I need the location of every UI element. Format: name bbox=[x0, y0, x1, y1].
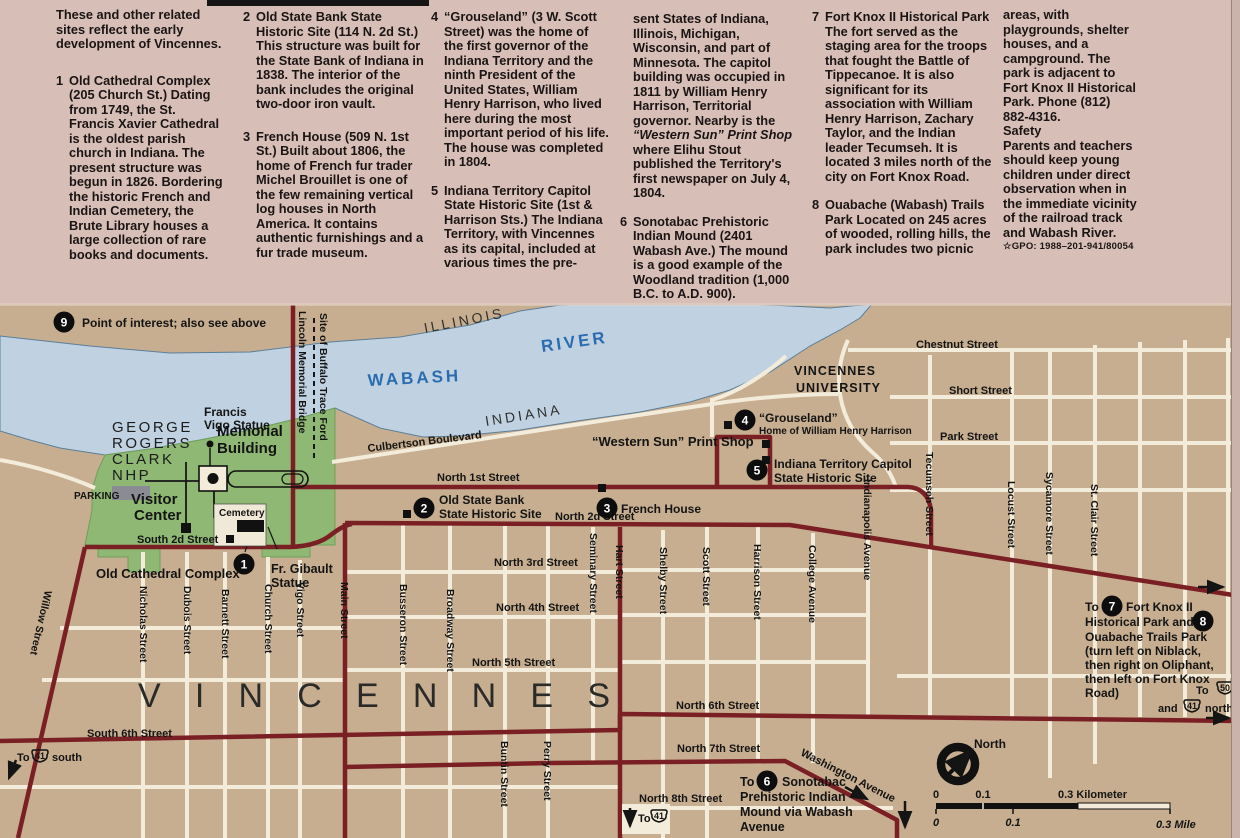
gpo-imprint: ☆GPO: 1988–201-941/80054 bbox=[1003, 240, 1137, 255]
street-label-st-clair: St. Clair Street bbox=[1088, 484, 1100, 557]
svg-text:3: 3 bbox=[604, 502, 611, 516]
park-name-line4: NHP bbox=[112, 467, 151, 484]
entry-number: 4 bbox=[431, 10, 444, 170]
street-label-north-7th: North 7th Street bbox=[677, 743, 760, 755]
street-label-lincoln-bridge: Lincoln Memorial Bridge bbox=[296, 311, 308, 434]
street-label-church: Church Street bbox=[262, 584, 274, 654]
text-column-1: These and other related sites reflect th… bbox=[56, 8, 224, 313]
entry-body: “Grouseland” (3 W. Scott Street) was the… bbox=[444, 10, 611, 170]
street-label-college: College Avenue bbox=[806, 545, 818, 623]
svg-text:Avenue: Avenue bbox=[740, 820, 785, 834]
svg-text:41: 41 bbox=[1187, 701, 1197, 711]
street-label-vigo: Vigo Street bbox=[294, 582, 306, 638]
entry-body: Sonotabac Prehistoric Indian Mound (2401… bbox=[633, 215, 802, 302]
entry-number: 2 bbox=[243, 10, 256, 112]
park-name-line3: CLARK bbox=[112, 451, 175, 468]
street-label-locust: Locust Street bbox=[1005, 481, 1017, 549]
svg-text:To: To bbox=[1085, 600, 1099, 614]
street-label-main: Main Street bbox=[338, 582, 350, 639]
street-label-north-3rd: North 3rd Street bbox=[494, 557, 578, 569]
svg-text:7: 7 bbox=[1109, 600, 1116, 614]
safety-paragraph: Parents and teachers should keep young c… bbox=[1003, 139, 1137, 241]
street-label-harrison: Harrison Street bbox=[751, 544, 763, 620]
svg-text:0.3 Mile: 0.3 Mile bbox=[1156, 819, 1196, 831]
western-sun-label: “Western Sun” Print Shop bbox=[592, 434, 754, 449]
street-label-tecumseh: Tecumseh Street bbox=[923, 452, 935, 536]
street-label-north-5th: North 5th Street bbox=[472, 657, 555, 669]
francis-vigo-line1: Francis bbox=[204, 405, 247, 419]
paper-fold-line bbox=[0, 303, 1240, 306]
svg-text:50: 50 bbox=[1220, 683, 1230, 693]
svg-text:Road): Road) bbox=[1085, 686, 1119, 700]
entry-body: French House (509 N. 1st St.) Built abou… bbox=[256, 130, 425, 261]
svg-text:To: To bbox=[638, 813, 651, 825]
site-marker-1: 1 bbox=[234, 554, 255, 575]
street-label-south-6th: South 6th Street bbox=[87, 728, 172, 740]
svg-text:41: 41 bbox=[35, 751, 45, 761]
fr-gibault-line1: Fr. Gibault bbox=[271, 562, 334, 576]
svg-text:Sonotabac: Sonotabac bbox=[782, 775, 846, 789]
entry-number: 5 bbox=[431, 184, 444, 271]
compass-label: North bbox=[974, 737, 1006, 751]
park-name-line2: ROGERS bbox=[112, 435, 192, 452]
site-marker-4: 4 bbox=[735, 410, 756, 431]
svg-text:and: and bbox=[1158, 703, 1178, 715]
svg-text:0.1: 0.1 bbox=[1005, 817, 1020, 829]
entry-old-cathedral: 1 Old Cathedral Complex (205 Church St.)… bbox=[56, 74, 224, 263]
svg-text:south: south bbox=[52, 752, 82, 764]
intro-paragraph: These and other related sites reflect th… bbox=[56, 8, 224, 52]
street-label-seminary: Seminary Street bbox=[587, 533, 599, 613]
territory-capitol-line1: Indiana Territory Capitol bbox=[774, 457, 912, 471]
street-label-shelby: Shelby Street bbox=[657, 547, 669, 615]
street-label-barnett: Barnett Street bbox=[219, 589, 231, 659]
visitor-center-building bbox=[181, 523, 191, 533]
entry-ouabache: 8 Ouabache (Wabash) Trails Park Located … bbox=[812, 198, 994, 256]
street-label-scott: Scott Street bbox=[700, 547, 712, 606]
street-label-north-6th: North 6th Street bbox=[676, 700, 759, 712]
visitor-center-line1: Visitor bbox=[131, 491, 178, 508]
svg-text:4: 4 bbox=[742, 414, 749, 428]
svg-text:8: 8 bbox=[1200, 615, 1207, 629]
cemetery-building-small bbox=[226, 535, 234, 543]
svg-text:Historical Park and: Historical Park and bbox=[1085, 615, 1194, 629]
entry-sonotabac: 6 Sonotabac Prehistoric Indian Mound (24… bbox=[620, 215, 802, 302]
entry-continuation: sent States of Indiana, Illinois, Michig… bbox=[620, 12, 802, 201]
vu-line1: VINCENNES bbox=[794, 364, 876, 378]
cemetery-label: Cemetery bbox=[219, 508, 265, 519]
entry-number: 1 bbox=[56, 74, 69, 263]
svg-text:To: To bbox=[740, 775, 755, 789]
street-label-indianapolis: Indianapolis Avenue bbox=[861, 479, 873, 580]
street-label-north-1st: North 1st Street bbox=[437, 472, 520, 484]
entry-french-house: 3 French House (509 N. 1st St.) Built ab… bbox=[243, 130, 425, 261]
street-label-nicholas: Nicholas Street bbox=[137, 586, 149, 663]
svg-text:0.1: 0.1 bbox=[975, 789, 990, 801]
vu-line2: UNIVERSITY bbox=[796, 381, 881, 395]
svg-text:0.3 Kilometer: 0.3 Kilometer bbox=[1058, 789, 1128, 801]
svg-text:then left on Fort Knox: then left on Fort Knox bbox=[1085, 672, 1210, 686]
vincennes-map: ILLINOIS RIVER WABASH INDIANA 9 Point of… bbox=[0, 305, 1240, 838]
street-label-short: Short Street bbox=[949, 385, 1012, 397]
old-cathedral-label: Old Cathedral Complex bbox=[96, 566, 241, 581]
memorial-building-line2: Building bbox=[217, 440, 277, 457]
old-state-bank-line1: Old State Bank bbox=[439, 493, 525, 507]
entry-body: Fort Knox II Historical Park The fort se… bbox=[825, 10, 994, 184]
svg-text:Fort Knox II: Fort Knox II bbox=[1126, 600, 1193, 614]
site-marker-3: 3 bbox=[597, 498, 618, 519]
safety-heading: Safety bbox=[1003, 124, 1137, 139]
street-label-hart: Hart Street bbox=[613, 545, 625, 599]
svg-text:To: To bbox=[1196, 685, 1209, 697]
visitor-center-line2: Center bbox=[134, 507, 182, 524]
entry-grouseland: 4 “Grouseland” (3 W. Scott Street) was t… bbox=[431, 10, 611, 170]
italic-western-sun: “Western Sun” Print Shop bbox=[633, 127, 792, 142]
entry-number: 8 bbox=[812, 198, 825, 256]
text-column-5: 7 Fort Knox II Historical Park The fort … bbox=[812, 10, 994, 315]
svg-text:Mound via Wabash: Mound via Wabash bbox=[740, 805, 853, 819]
entry-old-state-bank: 2 Old State Bank State Historic Site (11… bbox=[243, 10, 425, 112]
street-label-north-4th: North 4th Street bbox=[496, 602, 579, 614]
svg-text:To: To bbox=[17, 752, 30, 764]
old-state-bank-line2: State Historic Site bbox=[439, 507, 542, 521]
svg-text:0: 0 bbox=[933, 789, 939, 801]
vigo-statue-dot bbox=[207, 441, 214, 448]
svg-text:2: 2 bbox=[421, 502, 428, 516]
entry-body: Old Cathedral Complex (205 Church St.) D… bbox=[69, 74, 224, 263]
svg-text:Ouabache Trails Park: Ouabache Trails Park bbox=[1085, 630, 1207, 644]
grouseland-sublabel: Home of William Henry Harrison bbox=[759, 426, 912, 437]
legend-number: 9 bbox=[61, 316, 68, 330]
entry-number bbox=[620, 12, 633, 201]
street-label-south-2d: South 2d Street bbox=[137, 534, 219, 546]
svg-text:6: 6 bbox=[764, 775, 771, 789]
street-label-north-8th: North 8th Street bbox=[639, 793, 722, 805]
entry-number: 3 bbox=[243, 130, 256, 261]
street-label-chestnut: Chestnut Street bbox=[916, 339, 998, 351]
site-marker-5: 5 bbox=[747, 460, 768, 481]
paper-edge-strip bbox=[1231, 0, 1240, 838]
entry-body: Indiana Territory Capitol State Historic… bbox=[444, 184, 611, 271]
text-column-6: areas, with playgrounds, shelter houses,… bbox=[1003, 8, 1137, 313]
grouseland-label: “Grouseland” bbox=[759, 411, 838, 425]
top-black-bar bbox=[207, 0, 429, 6]
memorial-building-line1: Memorial bbox=[217, 423, 283, 440]
street-label-busseron: Busseron Street bbox=[397, 584, 409, 666]
svg-text:5: 5 bbox=[754, 464, 761, 478]
street-label-buffalo-trace: Site of Buffalo Trace Ford bbox=[317, 313, 329, 441]
street-label-sycamore: Sycamore Street bbox=[1043, 472, 1055, 555]
street-label-dubois: Dubois Street bbox=[181, 586, 193, 655]
cemetery-building bbox=[237, 520, 264, 532]
text-column-3: 4 “Grouseland” (3 W. Scott Street) was t… bbox=[431, 10, 611, 315]
entry-body: sent States of Indiana, Illinois, Michig… bbox=[633, 12, 802, 201]
site-marker-2: 2 bbox=[414, 498, 435, 519]
svg-text:41: 41 bbox=[654, 811, 664, 821]
entry-number: 6 bbox=[620, 215, 633, 302]
description-panel: These and other related sites reflect th… bbox=[0, 0, 1240, 305]
entry-number: 7 bbox=[812, 10, 825, 184]
street-label-perry: Perry Street bbox=[541, 741, 553, 801]
svg-text:then right on Oliphant,: then right on Oliphant, bbox=[1085, 658, 1214, 672]
legend-text: Point of interest; also see above bbox=[82, 316, 266, 330]
street-label-park: Park Street bbox=[940, 431, 998, 443]
entry-territory-capitol: 5 Indiana Territory Capitol State Histor… bbox=[431, 184, 611, 271]
svg-text:Prehistoric Indian: Prehistoric Indian bbox=[740, 790, 846, 804]
parking-label: PARKING bbox=[74, 491, 120, 502]
street-label-north-2d: North 2d Street bbox=[555, 511, 635, 523]
svg-text:1: 1 bbox=[241, 558, 248, 572]
ouabache-continuation: areas, with playgrounds, shelter houses,… bbox=[1003, 8, 1137, 124]
entry-fort-knox: 7 Fort Knox II Historical Park The fort … bbox=[812, 10, 994, 184]
text-column-2: 2 Old State Bank State Historic Site (11… bbox=[243, 10, 425, 315]
street-label-broadway: Broadway Street bbox=[444, 589, 456, 672]
text-column-4: sent States of Indiana, Illinois, Michig… bbox=[620, 12, 802, 317]
svg-text:0: 0 bbox=[933, 817, 940, 829]
svg-text:north: north bbox=[1205, 703, 1233, 715]
svg-text:(turn left on Niblack,: (turn left on Niblack, bbox=[1085, 644, 1201, 658]
entry-body: Ouabache (Wabash) Trails Park Located on… bbox=[825, 198, 994, 256]
park-name-line1: GEORGE bbox=[112, 419, 193, 436]
street-label-buntin: Buntin Street bbox=[498, 741, 510, 807]
entry-body: Old State Bank State Historic Site (114 … bbox=[256, 10, 425, 112]
